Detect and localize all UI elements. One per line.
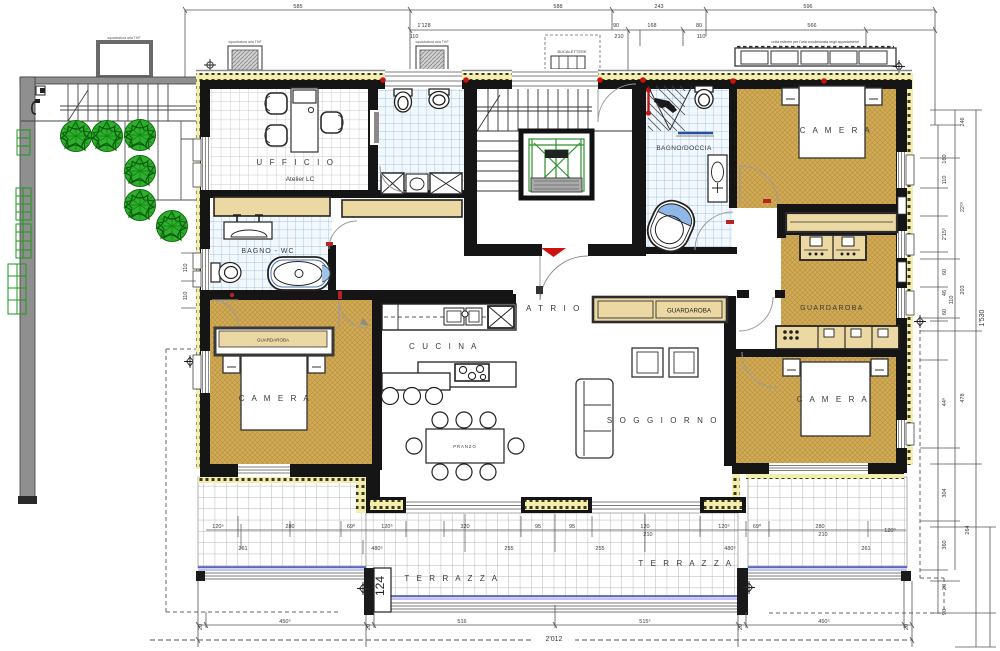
svg-text:60: 60 — [942, 309, 948, 315]
svg-text:S O G G I O R N O: S O G G I O R N O — [607, 416, 719, 425]
svg-text:95: 95 — [535, 524, 541, 530]
svg-text:A T R I O: A T R I O — [526, 304, 582, 313]
svg-text:110: 110 — [942, 176, 948, 185]
svg-text:C A M E R A: C A M E R A — [800, 126, 873, 135]
svg-text:480⁵: 480⁵ — [371, 545, 382, 552]
svg-text:squadratura aria THF: squadratura aria THF — [107, 36, 140, 40]
svg-text:95: 95 — [569, 524, 575, 530]
svg-text:20: 20 — [738, 624, 744, 630]
svg-text:90: 90 — [613, 23, 619, 29]
svg-text:480⁵: 480⁵ — [724, 545, 735, 552]
svg-text:C A M E R A: C A M E R A — [797, 395, 870, 404]
svg-text:60: 60 — [942, 269, 948, 275]
svg-text:280: 280 — [285, 524, 294, 530]
svg-text:1'128: 1'128 — [417, 23, 430, 29]
svg-text:478: 478 — [960, 393, 966, 402]
svg-text:BAGNO/DOCCIA: BAGNO/DOCCIA — [656, 145, 712, 152]
svg-text:246: 246 — [960, 117, 966, 126]
svg-text:124: 124 — [373, 576, 387, 596]
svg-text:120⁵: 120⁵ — [212, 523, 223, 530]
svg-text:585: 585 — [293, 4, 302, 10]
svg-text:360: 360 — [942, 540, 948, 549]
svg-text:120⁵: 120⁵ — [718, 523, 729, 530]
svg-text:261: 261 — [861, 546, 870, 552]
svg-text:596: 596 — [803, 4, 812, 10]
svg-text:255: 255 — [504, 546, 513, 552]
svg-text:2'15⁵: 2'15⁵ — [941, 228, 948, 241]
svg-text:110: 110 — [697, 34, 706, 40]
svg-text:22²⁸: 22²⁸ — [959, 202, 966, 212]
svg-text:120⁵: 120⁵ — [381, 523, 392, 530]
svg-text:515⁵: 515⁵ — [639, 618, 650, 625]
svg-text:110: 110 — [183, 264, 189, 273]
svg-text:squadratura aria THF: squadratura aria THF — [415, 40, 448, 44]
svg-text:450⁵: 450⁵ — [279, 618, 290, 625]
svg-text:PRANZO: PRANZO — [453, 444, 476, 449]
svg-text:566: 566 — [807, 23, 816, 29]
svg-text:1'530: 1'530 — [979, 309, 986, 326]
svg-text:squadratura aria THF: squadratura aria THF — [228, 40, 261, 44]
svg-text:210: 210 — [614, 34, 623, 40]
svg-text:GUARDAROBA: GUARDAROBA — [667, 308, 712, 315]
svg-text:160: 160 — [942, 154, 948, 163]
svg-text:BUCALETTERE: BUCALETTERE — [557, 49, 586, 54]
svg-text:GUARDAROBA: GUARDAROBA — [257, 338, 289, 343]
svg-text:2'012: 2'012 — [546, 636, 563, 643]
svg-text:203: 203 — [960, 285, 966, 294]
svg-text:C U C I N A: C U C I N A — [409, 342, 479, 351]
svg-text:80: 80 — [696, 23, 702, 29]
svg-text:20: 20 — [366, 624, 372, 630]
svg-text:168: 168 — [647, 23, 656, 29]
svg-text:120⁰: 120⁰ — [884, 527, 896, 534]
svg-text:450⁵: 450⁵ — [818, 618, 829, 625]
svg-text:588: 588 — [553, 4, 562, 10]
svg-text:243: 243 — [654, 4, 663, 10]
svg-text:C A M E R A: C A M E R A — [239, 394, 312, 403]
svg-text:320: 320 — [460, 524, 469, 530]
svg-text:U F F I C I O: U F F I C I O — [256, 158, 335, 167]
svg-text:20: 20 — [942, 584, 948, 590]
svg-text:44⁸: 44⁸ — [941, 398, 948, 406]
svg-text:120: 120 — [640, 524, 649, 530]
svg-text:T E R R A Z Z A: T E R R A Z Z A — [404, 574, 499, 583]
svg-text:46: 46 — [942, 290, 948, 296]
svg-text:304: 304 — [942, 488, 948, 497]
svg-text:110: 110 — [949, 296, 955, 305]
svg-text:BAGNO - WC: BAGNO - WC — [241, 248, 294, 255]
svg-text:110: 110 — [183, 292, 189, 301]
svg-text:264: 264 — [965, 525, 971, 534]
svg-text:20: 20 — [904, 624, 910, 630]
svg-text:69⁰: 69⁰ — [753, 523, 762, 530]
svg-text:261: 261 — [238, 546, 247, 552]
svg-text:Atelier LC: Atelier LC — [286, 176, 315, 183]
svg-text:280: 280 — [815, 524, 824, 530]
svg-text:210: 210 — [643, 532, 652, 538]
svg-text:255: 255 — [595, 546, 604, 552]
svg-text:90: 90 — [942, 609, 948, 615]
svg-text:T E R R A Z Z A: T E R R A Z Z A — [638, 559, 733, 568]
svg-text:20: 20 — [198, 624, 204, 630]
svg-text:69⁰: 69⁰ — [347, 523, 356, 530]
svg-text:GUARDAROBA: GUARDAROBA — [800, 305, 864, 312]
svg-text:unità esterne per l'aria condi: unità esterne per l'aria condizionata ne… — [771, 40, 858, 44]
svg-text:210: 210 — [818, 532, 827, 538]
svg-text:516: 516 — [457, 619, 466, 625]
